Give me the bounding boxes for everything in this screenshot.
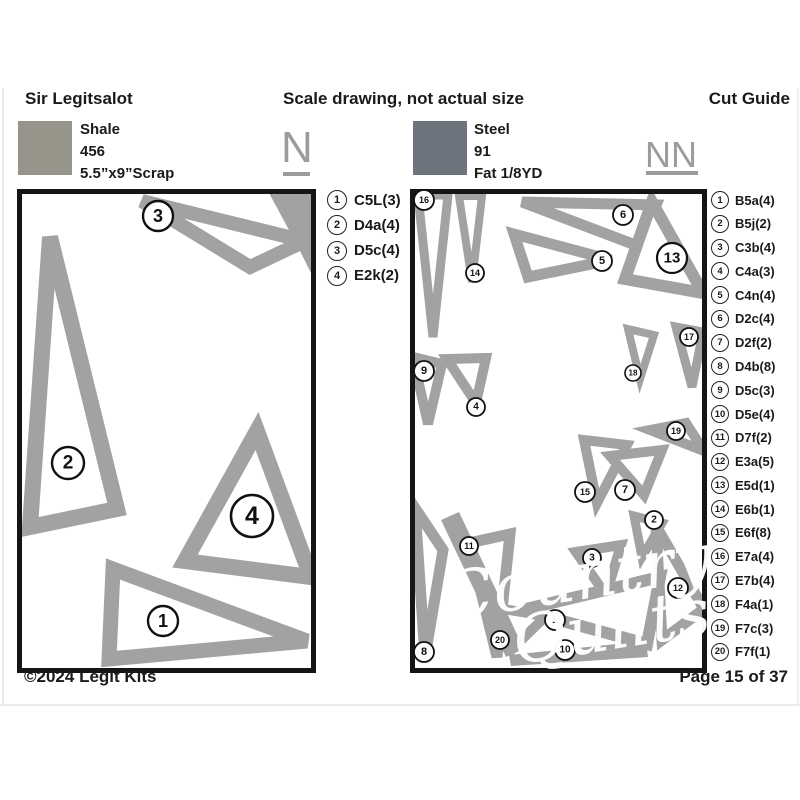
piece-marker-13: 13 <box>657 243 687 273</box>
legend-num-circle: 4 <box>711 262 729 280</box>
svg-text:15: 15 <box>580 487 590 497</box>
legend-label: D4a(4) <box>354 217 400 234</box>
piece-marker-9: 9 <box>414 361 434 381</box>
piece-marker-1: 1 <box>545 610 565 630</box>
svg-text:8: 8 <box>421 646 427 658</box>
legend-label: F7f(1) <box>735 644 770 659</box>
legend-num-circle: 11 <box>711 429 729 447</box>
legend-label: B5a(4) <box>735 193 775 208</box>
svg-text:3: 3 <box>153 206 163 226</box>
legend-item: 13E5d(1) <box>711 476 775 494</box>
shale-swatch <box>18 121 72 175</box>
legend-label: F7c(3) <box>735 621 773 636</box>
legend-item: 16E7a(4) <box>711 548 775 566</box>
piece-marker-2: 2 <box>645 511 663 529</box>
piece-marker-14: 14 <box>466 264 484 282</box>
legend-item: 3 D5c(4) <box>327 241 401 261</box>
legend-label: D5e(4) <box>735 407 775 422</box>
svg-text:2: 2 <box>651 515 657 526</box>
legend-label: E6f(8) <box>735 525 771 540</box>
fabric-cut: 5.5”x9”Scrap <box>80 163 174 185</box>
legend-item: 9D5c(3) <box>711 381 775 399</box>
legend-label: D5c(4) <box>354 242 400 259</box>
legend-num-circle: 10 <box>711 405 729 423</box>
legend-item: 10D5e(4) <box>711 405 775 423</box>
right-legend: 1B5a(4) 2B5j(2) 3C3b(4) 4C4a(3) 5C4n(4) … <box>711 191 775 661</box>
fabric-name: Shale <box>80 119 174 141</box>
shale-fabric-info: Shale 456 5.5”x9”Scrap <box>80 119 174 185</box>
svg-text:3: 3 <box>589 553 595 564</box>
piece-marker-11: 11 <box>460 537 478 555</box>
block-letter-nn: NN <box>645 137 697 173</box>
fabric-cut: Fat 1/8YD <box>474 163 542 185</box>
legend-item: 12E3a(5) <box>711 453 775 471</box>
page-edge-left <box>2 88 4 706</box>
legend-item: 2 D4a(4) <box>327 215 401 235</box>
piece-marker-1: 1 <box>148 606 178 636</box>
svg-text:4: 4 <box>473 402 479 413</box>
legend-num-circle: 5 <box>711 286 729 304</box>
legend-label: C4a(3) <box>735 264 775 279</box>
page-edge-right <box>797 88 799 706</box>
piece-marker-12: 12 <box>668 578 688 598</box>
legend-num-circle: 20 <box>711 643 729 661</box>
page-edge-bottom <box>0 704 800 706</box>
legend-item: 15E6f(8) <box>711 524 775 542</box>
legend-num-circle: 7 <box>711 334 729 352</box>
steel-swatch <box>413 121 467 175</box>
piece-marker-17: 17 <box>680 328 698 346</box>
piece-marker-18: 18 <box>625 365 641 381</box>
piece-marker-3: 3 <box>583 549 601 567</box>
legend-item: 14E6b(1) <box>711 500 775 518</box>
section-title-left: Sir Legitsalot <box>25 89 133 109</box>
legend-num-circle: 3 <box>327 241 347 261</box>
legend-label: B5j(2) <box>735 216 771 231</box>
svg-text:2: 2 <box>63 453 74 474</box>
right-cut-diagram: 16 14 6 5 13 17 18 9 4 19 15 7 2 11 3 12… <box>410 189 707 673</box>
legend-item: 11D7f(2) <box>711 429 775 447</box>
legend-item: 8D4b(8) <box>711 357 775 375</box>
legend-num-circle: 15 <box>711 524 729 542</box>
legend-item: 6D2c(4) <box>711 310 775 328</box>
svg-text:7: 7 <box>622 484 628 496</box>
svg-text:11: 11 <box>464 541 474 551</box>
block-letter-n: N <box>281 126 313 170</box>
fabric-number: 91 <box>474 141 542 163</box>
legend-num-circle: 19 <box>711 619 729 637</box>
copyright: ©2024 Legit Kits <box>24 667 157 687</box>
legend-num-circle: 14 <box>711 500 729 518</box>
svg-text:18: 18 <box>629 369 638 378</box>
legend-num-circle: 18 <box>711 595 729 613</box>
piece-marker-16: 16 <box>414 190 434 210</box>
svg-text:1: 1 <box>552 614 558 626</box>
legend-num-circle: 9 <box>711 381 729 399</box>
legend-item: 1B5a(4) <box>711 191 775 209</box>
piece-marker-4: 4 <box>231 495 273 537</box>
legend-label: F4a(1) <box>735 597 773 612</box>
scale-note: Scale drawing, not actual size <box>283 89 524 109</box>
page-number: Page 15 of 37 <box>679 667 788 687</box>
legend-label: D2c(4) <box>735 311 775 326</box>
legend-item: 4 E2k(2) <box>327 266 401 286</box>
svg-text:16: 16 <box>419 195 429 205</box>
left-legend: 1 C5L(3) 2 D4a(4) 3 D5c(4) 4 E2k(2) <box>327 190 401 286</box>
legend-label: D5c(3) <box>735 383 775 398</box>
legend-label: D7f(2) <box>735 430 772 445</box>
svg-text:13: 13 <box>664 250 681 267</box>
legend-item: 7D2f(2) <box>711 334 775 352</box>
letter-n-underline <box>283 172 310 176</box>
svg-text:12: 12 <box>673 583 683 593</box>
svg-text:4: 4 <box>245 502 259 530</box>
svg-text:5: 5 <box>599 255 605 267</box>
svg-text:14: 14 <box>470 268 480 278</box>
legend-num-circle: 17 <box>711 572 729 590</box>
legend-label: C3b(4) <box>735 240 775 255</box>
legend-num-circle: 12 <box>711 453 729 471</box>
legend-label: E3a(5) <box>735 454 774 469</box>
legend-item: 19F7c(3) <box>711 619 775 637</box>
legend-item: 17E7b(4) <box>711 572 775 590</box>
legend-num-circle: 2 <box>711 215 729 233</box>
legend-item: 3C3b(4) <box>711 239 775 257</box>
piece-marker-7: 7 <box>615 480 635 500</box>
svg-text:10: 10 <box>559 645 571 656</box>
legend-label: E6b(1) <box>735 502 775 517</box>
legend-item: 5C4n(4) <box>711 286 775 304</box>
piece-marker-8: 8 <box>414 642 434 662</box>
legend-label: E7a(4) <box>735 549 774 564</box>
legend-num-circle: 4 <box>327 266 347 286</box>
legend-num-circle: 1 <box>711 191 729 209</box>
legend-num-circle: 2 <box>327 215 347 235</box>
legend-num-circle: 1 <box>327 190 347 210</box>
legend-label: D4b(8) <box>735 359 775 374</box>
legend-label: E5d(1) <box>735 478 775 493</box>
legend-label: C4n(4) <box>735 288 775 303</box>
cut-guide-title: Cut Guide <box>709 89 790 109</box>
piece-marker-3: 3 <box>143 201 173 231</box>
legend-num-circle: 8 <box>711 357 729 375</box>
legend-num-circle: 16 <box>711 548 729 566</box>
legend-label: E7b(4) <box>735 573 775 588</box>
piece-marker-5: 5 <box>592 251 612 271</box>
piece-marker-20: 20 <box>491 631 509 649</box>
letter-nn-underline <box>646 171 698 175</box>
legend-item: 18F4a(1) <box>711 595 775 613</box>
svg-text:17: 17 <box>684 332 694 342</box>
svg-text:1: 1 <box>158 611 168 631</box>
piece-marker-2: 2 <box>52 447 84 479</box>
piece-marker-15: 15 <box>575 482 595 502</box>
legend-num-circle: 3 <box>711 239 729 257</box>
svg-text:19: 19 <box>671 426 681 436</box>
legend-label: D2f(2) <box>735 335 772 350</box>
legend-label: E2k(2) <box>354 267 399 284</box>
left-cut-diagram: 3 2 4 1 <box>17 189 316 673</box>
legend-num-circle: 13 <box>711 476 729 494</box>
legend-num-circle: 6 <box>711 310 729 328</box>
steel-fabric-info: Steel 91 Fat 1/8YD <box>474 119 542 185</box>
piece-marker-10: 10 <box>555 640 575 660</box>
piece-marker-6: 6 <box>613 205 633 225</box>
piece-marker-19: 19 <box>667 422 685 440</box>
fabric-number: 456 <box>80 141 174 163</box>
legend-label: C5L(3) <box>354 192 401 209</box>
legend-item: 20F7f(1) <box>711 643 775 661</box>
fabric-name: Steel <box>474 119 542 141</box>
legend-item: 2B5j(2) <box>711 215 775 233</box>
legend-item: 4C4a(3) <box>711 262 775 280</box>
svg-text:20: 20 <box>495 635 505 645</box>
piece-marker-4: 4 <box>467 398 485 416</box>
svg-text:6: 6 <box>620 209 626 221</box>
svg-text:9: 9 <box>421 365 427 377</box>
legend-item: 1 C5L(3) <box>327 190 401 210</box>
